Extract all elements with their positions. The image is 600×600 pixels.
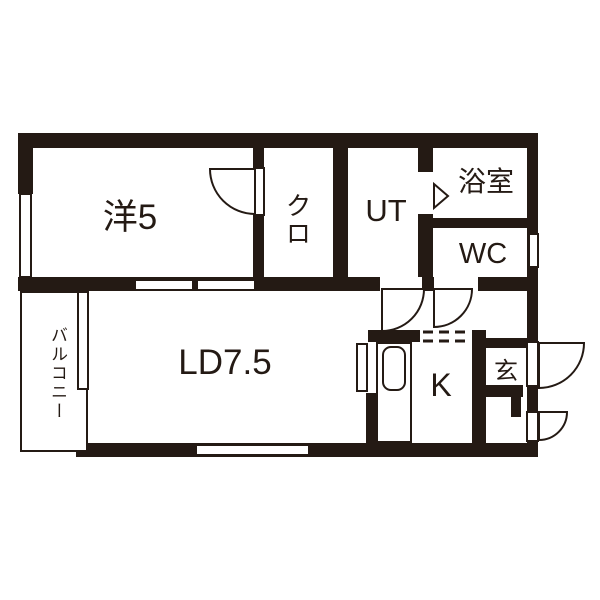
entrance-door-leaf <box>526 341 539 387</box>
wall-gap <box>472 277 478 291</box>
entrance-step <box>472 338 528 348</box>
toilet-doorway-gap <box>434 277 472 291</box>
utility-doorway-gap <box>380 277 422 291</box>
toilet-door-swing <box>434 289 472 327</box>
lower-door-swing <box>539 412 567 440</box>
sliding-partition-left <box>134 279 194 291</box>
kitchen-counter <box>376 342 412 443</box>
wall-alcove-stub <box>511 397 521 417</box>
utility-door-swing <box>382 289 424 331</box>
sliding-partition-right <box>196 279 256 291</box>
wall-left-upper <box>18 148 33 194</box>
room-label-bathroom: 浴室 <box>433 160 539 200</box>
kitchen-counter-back <box>368 330 420 342</box>
window-west <box>19 193 32 278</box>
room-label-living-dining: LD7.5 <box>140 343 310 383</box>
balcony-window <box>77 291 89 390</box>
wall-bath-wc <box>433 218 527 228</box>
room-label-closet: クロ <box>282 180 316 260</box>
room-label-utility: UT <box>346 193 426 229</box>
entrance-hall-opening <box>472 291 486 330</box>
wall-right-lower <box>527 440 538 457</box>
wall-kitchen-entrance <box>472 330 486 457</box>
room-label-kitchen: K <box>416 367 466 404</box>
wall-right-mid <box>527 386 538 412</box>
wall-entrance-alcove <box>486 385 523 397</box>
floor-plan: 洋5 クロ UT 浴室 WC バルコニー LD7.5 K 玄 <box>0 0 600 600</box>
closet-door-swing <box>210 169 255 214</box>
closet-door-leaf <box>253 167 265 216</box>
entrance-door-swing <box>539 343 584 388</box>
fixtures-overlay <box>0 0 600 600</box>
room-label-toilet: WC <box>433 238 533 271</box>
kitchen-counter-side <box>356 343 368 392</box>
room-label-entrance: 玄 <box>487 351 525 386</box>
room-label-western: 洋5 <box>60 189 200 240</box>
window-ld-south <box>195 444 310 456</box>
lower-door-leaf <box>526 411 539 442</box>
wall-top <box>18 133 538 148</box>
room-label-balcony: バルコニー <box>42 298 70 448</box>
